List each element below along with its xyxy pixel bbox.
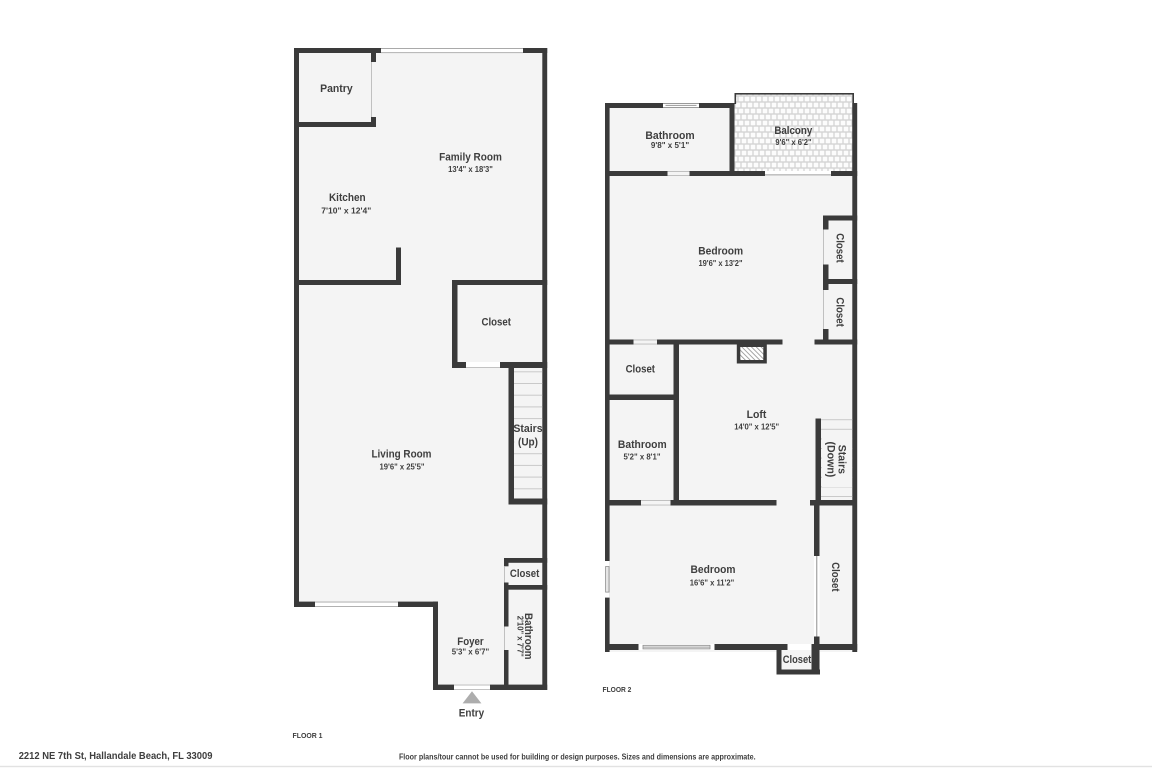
svg-text:Closet: Closet — [783, 654, 812, 666]
svg-text:14'0" x 12'5": 14'0" x 12'5" — [734, 422, 779, 432]
svg-text:19'6" x 25'5": 19'6" x 25'5" — [380, 461, 425, 471]
svg-text:Closet: Closet — [834, 233, 846, 263]
svg-text:Family Room: Family Room — [439, 152, 502, 164]
svg-text:Living Room: Living Room — [372, 449, 432, 461]
svg-text:2'10" x 7'7": 2'10" x 7'7" — [515, 616, 525, 657]
svg-text:(Down): (Down) — [824, 441, 836, 477]
svg-text:Stairs: Stairs — [513, 423, 542, 435]
svg-text:7'10" x 12'4": 7'10" x 12'4" — [321, 205, 371, 215]
svg-text:Pantry: Pantry — [320, 83, 353, 95]
svg-text:Floor plans/tour cannot be use: Floor plans/tour cannot be used for buil… — [399, 751, 756, 761]
svg-text:5'2" x 8'1": 5'2" x 8'1" — [623, 451, 660, 461]
svg-text:Closet: Closet — [626, 364, 656, 376]
svg-text:5'3" x 6'7": 5'3" x 6'7" — [452, 646, 489, 656]
svg-text:(Up): (Up) — [518, 436, 538, 448]
svg-text:Entry: Entry — [459, 707, 484, 719]
svg-text:Closet: Closet — [482, 316, 512, 328]
svg-text:16'6" x 11'2": 16'6" x 11'2" — [690, 577, 735, 587]
svg-text:Loft: Loft — [747, 409, 767, 421]
svg-text:2212 NE 7th St, Hallandale Bea: 2212 NE 7th St, Hallandale Beach, FL 330… — [19, 751, 213, 762]
svg-text:Bathroom: Bathroom — [618, 439, 667, 451]
svg-text:Closet: Closet — [834, 297, 846, 327]
svg-text:9'8" x 5'1": 9'8" x 5'1" — [651, 140, 689, 150]
svg-text:Closet: Closet — [829, 562, 841, 592]
svg-text:Closet: Closet — [510, 568, 540, 580]
svg-text:FLOOR 1: FLOOR 1 — [293, 731, 323, 740]
svg-text:Balcony: Balcony — [774, 125, 812, 137]
svg-text:FLOOR 2: FLOOR 2 — [603, 685, 632, 694]
svg-text:Kitchen: Kitchen — [329, 192, 366, 204]
svg-text:Bedroom: Bedroom — [698, 246, 743, 258]
svg-text:9'6" x 6'2": 9'6" x 6'2" — [775, 137, 811, 147]
svg-text:Bedroom: Bedroom — [691, 564, 736, 576]
svg-text:13'4" x 18'3": 13'4" x 18'3" — [448, 164, 493, 174]
svg-text:19'6" x 13'2": 19'6" x 13'2" — [698, 258, 742, 268]
